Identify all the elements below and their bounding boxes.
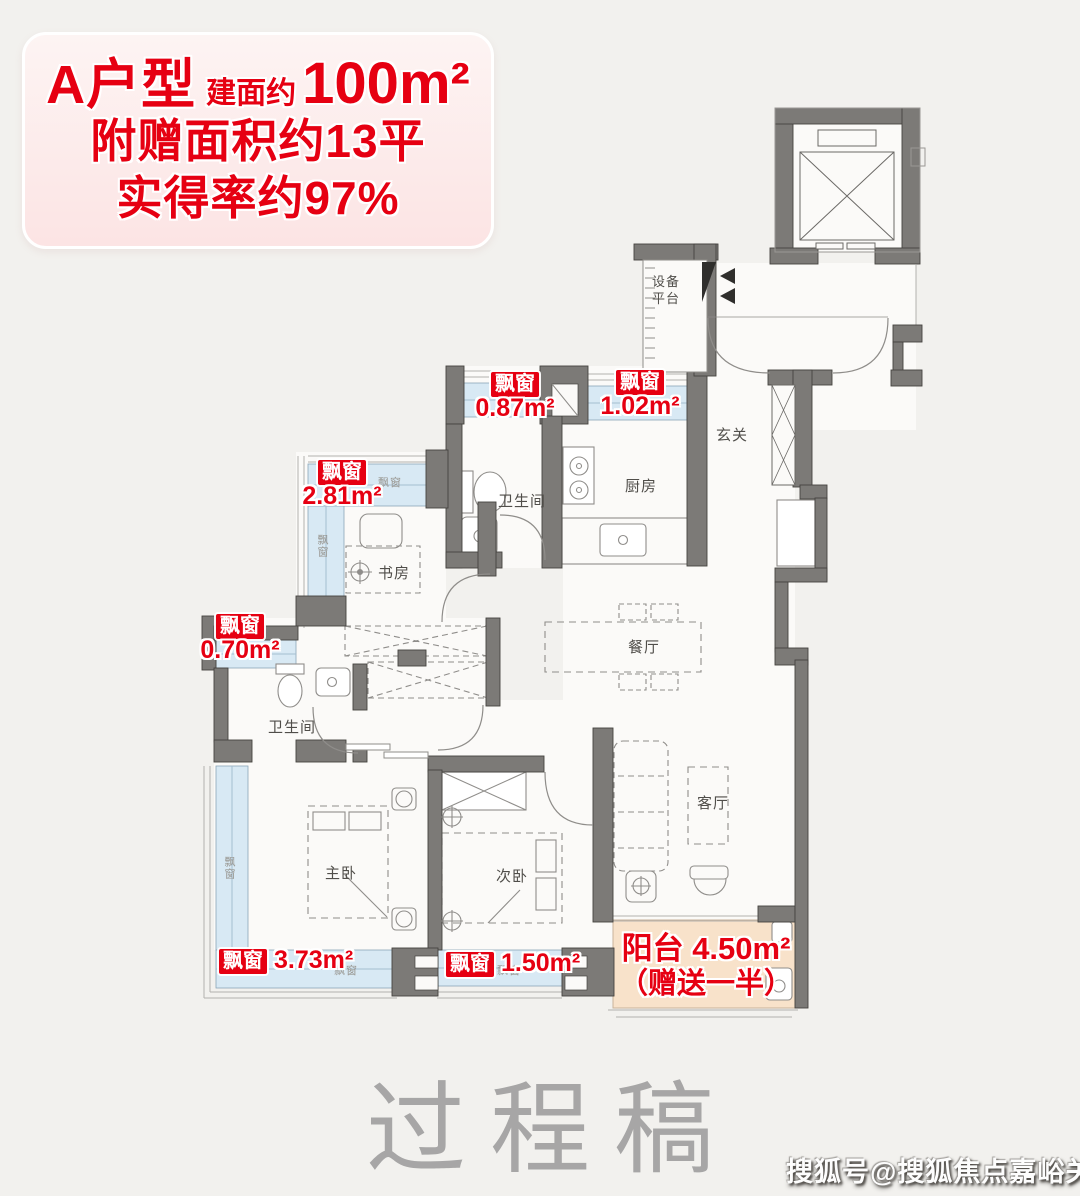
bay-label-1.50: 飘窗 1.50m² [446, 952, 580, 977]
bay-value: 1.50m² [501, 950, 580, 976]
balcony-label: 阳台 4.50m² （赠送一半） [608, 930, 804, 1002]
bay-label-2.81: 飘窗 2.81m² [300, 460, 384, 509]
room-label-foyer: 玄关 [716, 426, 748, 446]
bay-label-0.70: 飘窗 0.70m² [198, 614, 282, 663]
bay-label-3.73: 飘窗 3.73m² [219, 949, 353, 974]
sohu-watermark: 搜狐号@搜狐焦点嘉峪关站 [786, 1150, 1080, 1189]
draft-watermark: 过程稿 [366, 1048, 738, 1193]
room-label-bathroom-1: 卫生间 [498, 492, 546, 512]
title-card: A户型 建面约 100m² 附赠面积约13平 实得率约97% [22, 32, 494, 249]
area-prefix: 建面约 [206, 79, 296, 109]
floorplan-page: A户型 建面约 100m² 附赠面积约13平 实得率约97% 飘窗 0.87m²… [0, 0, 1080, 1196]
room-label-equipment-platform: 设备平台 [649, 274, 683, 308]
bay-annotation: 飘窗 [221, 856, 237, 880]
room-label-dining: 餐厅 [628, 638, 660, 658]
rate-line: 实得率约97% [116, 170, 399, 226]
bay-badge: 飘窗 [219, 949, 267, 974]
unit-name: A户型 [46, 58, 196, 112]
room-label-bathroom-2: 卫生间 [268, 718, 316, 738]
room-label-kitchen: 厨房 [625, 477, 657, 497]
room-label-master-bedroom: 主卧 [325, 864, 357, 884]
room-label-second-bedroom: 次卧 [496, 867, 528, 887]
bay-badge: 飘窗 [446, 952, 494, 977]
title-line-1: A户型 建面约 100m² [46, 55, 470, 113]
bay-label-0.87: 飘窗 0.87m² [468, 372, 562, 421]
bay-annotation: 飘窗 [314, 534, 330, 558]
bay-value: 2.81m² [302, 483, 381, 509]
room-label-study: 书房 [378, 564, 410, 584]
area-value: 100m² [302, 55, 470, 113]
balcony-gift-note: （赠送一半） [608, 967, 804, 1002]
bay-value: 0.87m² [475, 395, 554, 421]
bonus-line: 附赠面积约13平 [90, 113, 425, 169]
bay-value: 1.02m² [600, 393, 679, 419]
bay-value: 3.73m² [274, 947, 353, 973]
room-label-living: 客厅 [697, 794, 729, 814]
bay-value: 0.70m² [200, 637, 279, 663]
balcony-area: 阳台 4.50m² [608, 930, 804, 967]
bay-label-1.02: 飘窗 1.02m² [598, 370, 682, 419]
